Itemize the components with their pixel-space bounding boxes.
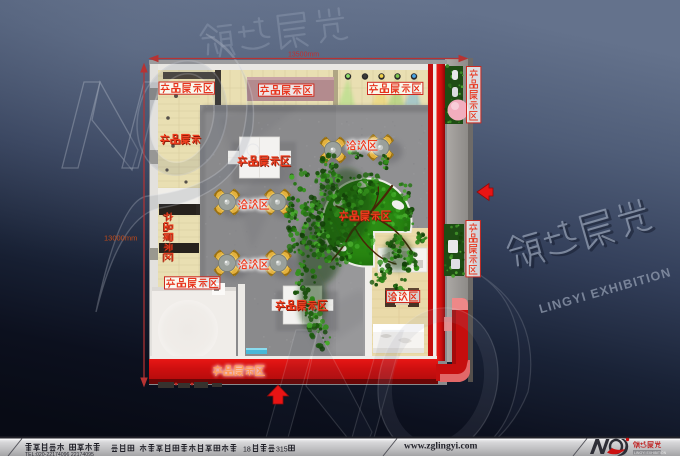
svg-text:18: 18 (243, 447, 251, 454)
svg-text:LINGYI EXHIBITION: LINGYI EXHIBITION (634, 451, 667, 455)
svg-text:TEL:020-22174096 22174095: TEL:020-22174096 22174095 (25, 452, 94, 456)
svg-text:13000mm: 13000mm (104, 234, 137, 243)
svg-text:315: 315 (276, 447, 288, 454)
svg-text:13500mm: 13500mm (288, 52, 319, 59)
svg-text:www.zglingyi.com: www.zglingyi.com (404, 442, 477, 452)
